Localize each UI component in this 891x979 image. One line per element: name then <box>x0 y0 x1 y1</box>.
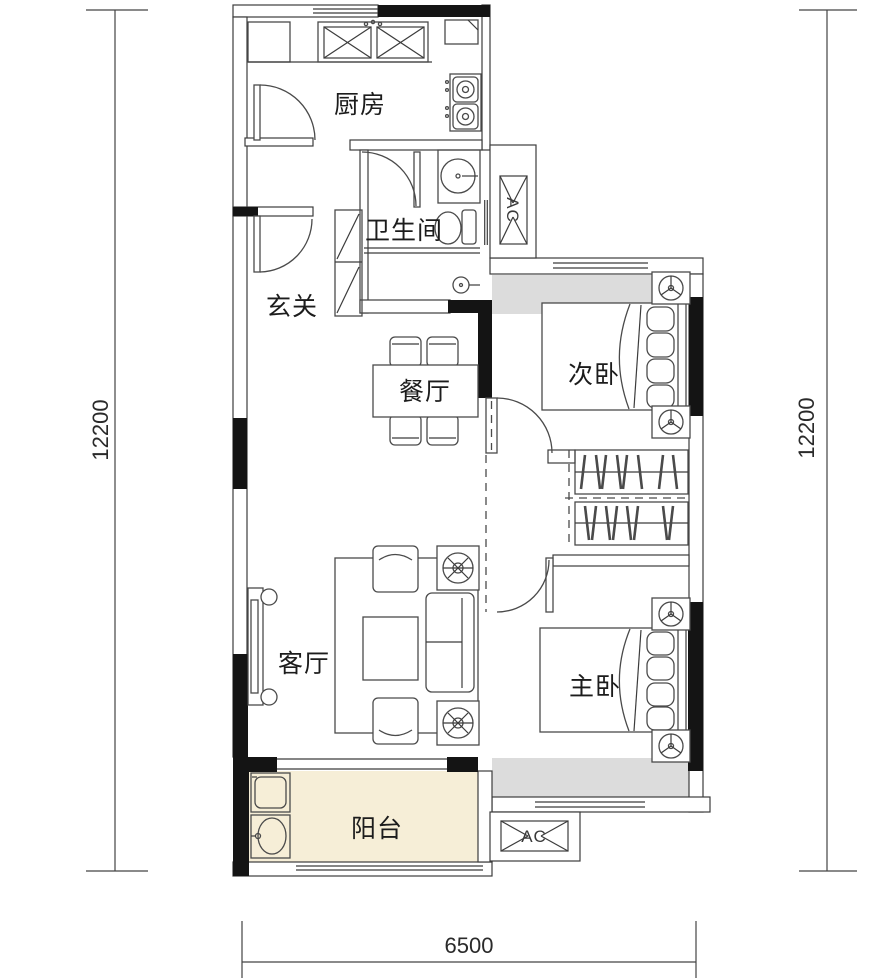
floor-plan-page: 厨房 玄关 卫生间 <box>0 0 891 979</box>
wall-kitchen-right <box>482 5 490 150</box>
dimension-bottom: 6500 <box>242 921 696 978</box>
dining-room: 餐厅 <box>373 337 478 445</box>
black-wall-bathroom-bottom <box>448 300 492 313</box>
pillow-icon <box>647 632 674 655</box>
bed-second-bedroom <box>542 303 686 410</box>
wall-top-left <box>233 5 378 17</box>
floor-plan-svg: 厨房 玄关 卫生间 <box>0 0 891 979</box>
armchair-icon <box>373 546 418 592</box>
ac-unit-top: AC <box>490 145 536 258</box>
nightstand-lamp-icon <box>652 730 690 762</box>
living-room: 客厅 <box>248 546 479 745</box>
dimension-right: 12200 <box>794 10 857 871</box>
living-label: 客厅 <box>278 650 330 678</box>
wall-bathroom-bottom <box>360 300 450 313</box>
entry-door-arc <box>260 219 312 272</box>
ac-top-label: AC <box>503 197 522 223</box>
plant-table-icon <box>437 701 479 745</box>
bathroom-door-arc <box>362 152 416 206</box>
dimension-left: 12200 <box>86 10 148 871</box>
ac-bottom-label: AC <box>521 827 547 846</box>
stove-icon <box>446 74 481 131</box>
black-wall-dining-right <box>478 313 492 398</box>
black-wall-right-1 <box>689 297 703 416</box>
pillow-icon <box>647 707 674 730</box>
armchair-icon <box>373 698 418 744</box>
kitchen-counter <box>248 22 290 62</box>
kitchen-door-arc <box>260 85 315 140</box>
entry-door-leaf <box>254 216 260 272</box>
bathroom: 卫生间 <box>362 150 480 293</box>
kitchen-door-leaf <box>254 85 260 140</box>
black-wall-left-1 <box>233 418 247 489</box>
bathroom-label: 卫生间 <box>365 217 443 245</box>
fridge-icon <box>445 20 478 44</box>
nightstand-lamp-icon <box>652 272 690 304</box>
nightstand-lamp-icon <box>652 598 690 630</box>
black-wall-balcony-right-top <box>447 757 478 772</box>
bathroom-door-leaf <box>414 152 420 207</box>
black-wall-left-2 <box>233 654 248 758</box>
pillow-icon <box>647 385 674 408</box>
black-wall-entrance <box>233 207 258 216</box>
wall-left <box>233 17 247 757</box>
kitchen: 厨房 <box>248 20 481 140</box>
plant-table-icon <box>437 546 479 590</box>
bay-window-fill-master-bedroom <box>492 758 703 797</box>
washbasin-icon <box>438 150 480 203</box>
dimension-bottom-value: 6500 <box>445 933 494 958</box>
kitchen-sink-unit <box>318 22 428 62</box>
pillow-icon <box>647 657 674 680</box>
wall-master-top <box>553 555 689 566</box>
sofa-icon <box>426 593 474 692</box>
wall-master-bottom <box>492 797 710 812</box>
master-bedroom-label: 主卧 <box>569 673 621 701</box>
tv-unit-icon <box>248 588 277 705</box>
coffee-table <box>363 617 418 680</box>
entrance-label: 玄关 <box>266 293 318 321</box>
balcony-label: 阳台 <box>351 815 403 843</box>
master-door-arc <box>497 560 549 612</box>
entrance-hall: 玄关 <box>254 210 362 321</box>
dining-label: 餐厅 <box>399 378 451 406</box>
pillow-icon <box>647 359 674 383</box>
pillow-icon <box>647 307 674 331</box>
pillow-icon <box>647 333 674 357</box>
master-door-leaf <box>546 558 553 612</box>
shoe-cabinet-icon <box>335 210 362 316</box>
nightstand-lamp-icon <box>652 406 690 438</box>
master-bedroom: 主卧 <box>486 455 690 762</box>
dimension-right-value: 12200 <box>794 397 819 458</box>
black-wall-top <box>378 5 490 17</box>
wardrobes <box>565 450 688 545</box>
black-wall-balcony-left <box>233 765 249 876</box>
second-bedroom-label: 次卧 <box>568 361 620 389</box>
wall-balcony-bottom <box>233 862 492 876</box>
wall-kitchen-bottom-right <box>350 140 482 150</box>
pillow-icon <box>647 683 674 706</box>
dimension-left-value: 12200 <box>88 399 113 460</box>
floor-drain-icon <box>453 277 480 293</box>
ac-unit-bottom: AC <box>490 812 580 861</box>
kitchen-label: 厨房 <box>334 91 386 119</box>
